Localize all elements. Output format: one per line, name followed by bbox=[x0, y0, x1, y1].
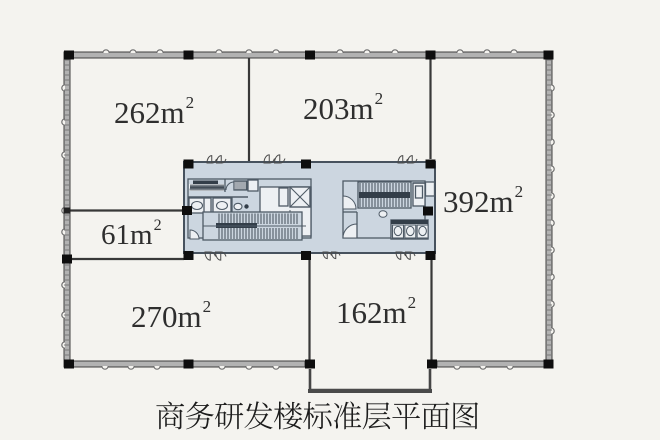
svg-text:162m2: 162m2 bbox=[336, 293, 416, 330]
svg-text:203m2: 203m2 bbox=[303, 89, 383, 126]
svg-text:262m2: 262m2 bbox=[114, 93, 194, 130]
svg-text:270m2: 270m2 bbox=[131, 297, 211, 334]
svg-text:392m2: 392m2 bbox=[443, 182, 523, 219]
svg-text:61m2: 61m2 bbox=[101, 217, 162, 251]
